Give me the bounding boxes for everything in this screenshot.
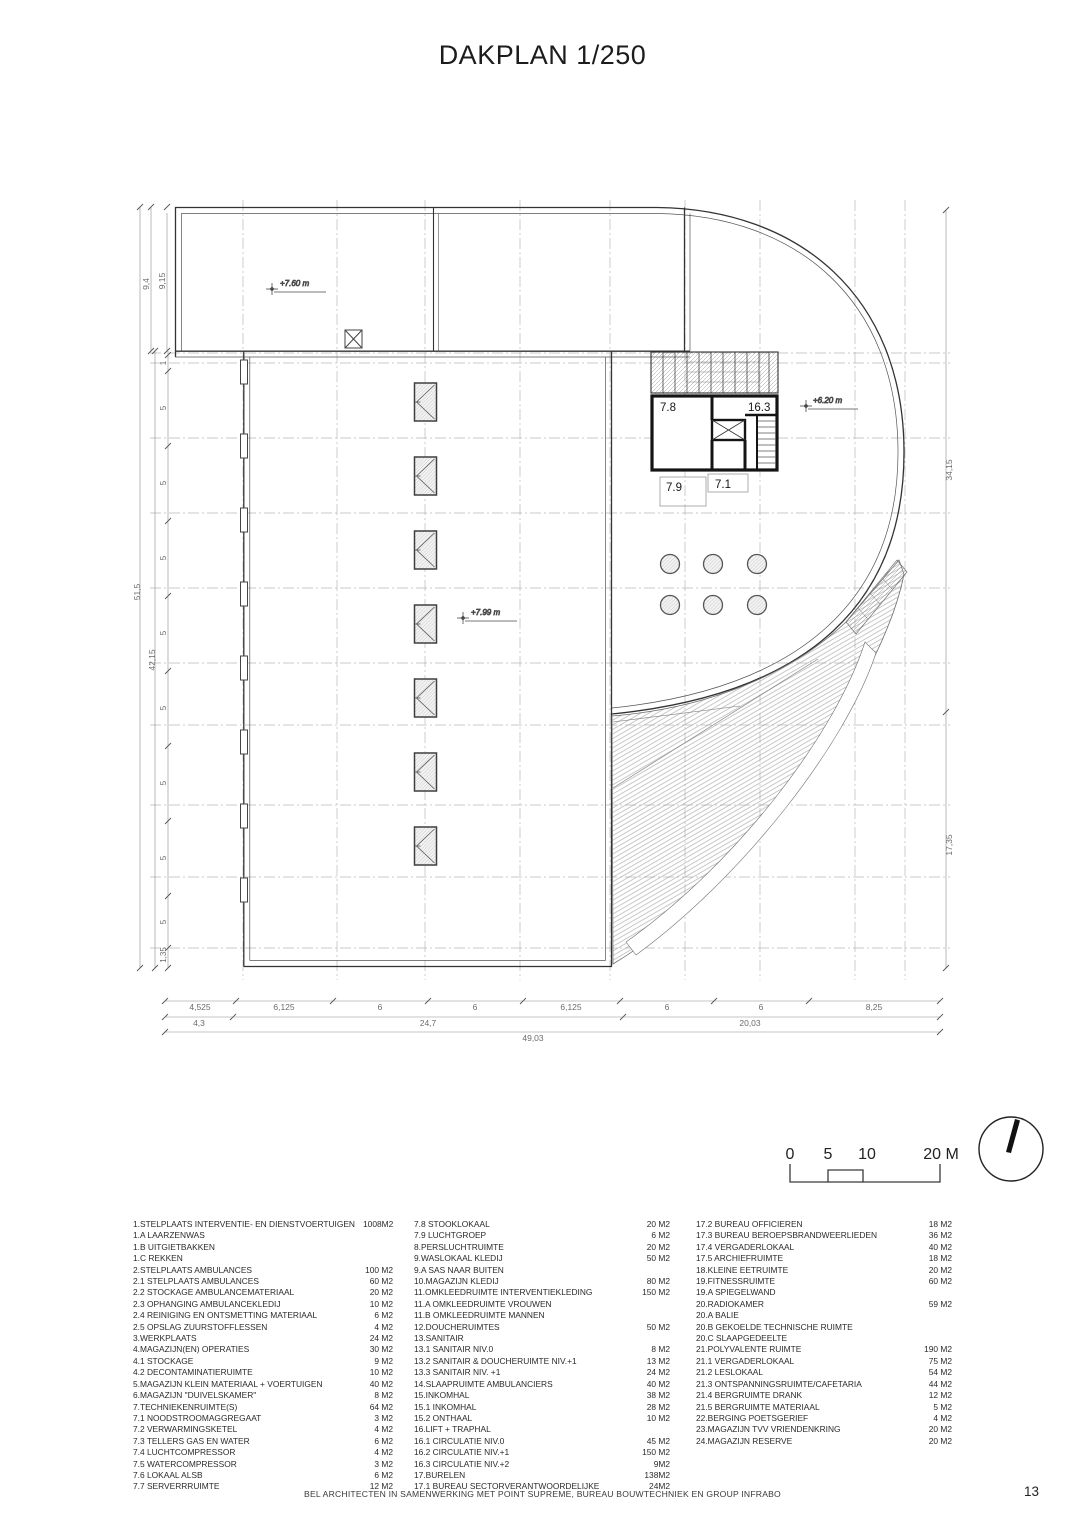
legend-room-label: 13.1 SANITAIR NIV.0 bbox=[414, 1344, 493, 1355]
legend-room-label: 17.2 BUREAU OFFICIEREN bbox=[696, 1219, 803, 1230]
roof-hatch-box bbox=[345, 330, 362, 348]
legend-room-label: 18.KLEINE EETRUIMTE bbox=[696, 1265, 788, 1276]
legend-room-label: 15.1 INKOMHAL bbox=[414, 1402, 476, 1413]
legend-row: 9.WASLOKAAL KLEDIJ50 M2 bbox=[414, 1253, 670, 1264]
dim-bottom-segment: 6 bbox=[665, 1002, 670, 1012]
skylight bbox=[415, 383, 437, 421]
legend-room-label: 20.RADIOKAMER bbox=[696, 1299, 764, 1310]
legend-row: 11.B OMKLEEDRUIMTE MANNEN bbox=[414, 1310, 670, 1321]
legend-area-value: 54 M2 bbox=[921, 1367, 952, 1378]
legend-row: 2.STELPLAATS AMBULANCES100 M2 bbox=[133, 1265, 393, 1276]
dim-left-ticklabels: 1555555551,35 bbox=[159, 360, 168, 963]
dim-bottom-group: 24,7 bbox=[420, 1018, 437, 1028]
legend-row: 2.4 REINIGING EN ONTSMETTING MATERIAAL6 … bbox=[133, 1310, 393, 1321]
legend-room-label: 17.5 ARCHIEFRUIMTE bbox=[696, 1253, 783, 1264]
legend-row: 1.B UITGIETBAKKEN bbox=[133, 1242, 393, 1253]
room-label-7-1: 7.1 bbox=[715, 479, 731, 491]
legend-area-value: 24 M2 bbox=[639, 1367, 670, 1378]
legend-room-label: 7.4 LUCHTCOMPRESSOR bbox=[133, 1447, 235, 1458]
legend-area-value: 20 M2 bbox=[921, 1424, 952, 1435]
dim-row-groups: 4,324,720,03 bbox=[193, 1018, 761, 1028]
legend-area-value bbox=[662, 1265, 670, 1276]
legend-row: 4.2 DECONTAMINATIERUIMTE10 M2 bbox=[133, 1367, 393, 1378]
legend-area-value: 4 M2 bbox=[366, 1424, 393, 1435]
legend-row: 7.8 STOOKLOKAAL20 M2 bbox=[414, 1219, 670, 1230]
legend-area-value: 13 M2 bbox=[639, 1356, 670, 1367]
legend-area-value: 20 M2 bbox=[921, 1436, 952, 1447]
legend-room-label: 21.4 BERGRUIMTE DRANK bbox=[696, 1390, 802, 1401]
legend-area-value bbox=[385, 1242, 393, 1253]
legend-room-label: 19.FITNESSRUIMTE bbox=[696, 1276, 775, 1287]
dim-bottom-segment: 6 bbox=[759, 1002, 764, 1012]
legend-room-label: 1.C REKKEN bbox=[133, 1253, 183, 1264]
legend-row: 16.3 CIRCULATIE NIV.+29M2 bbox=[414, 1459, 670, 1470]
dim-left-tick: 5 bbox=[159, 555, 168, 560]
dim-row-segments: 4,5256,125666,125668,25 bbox=[189, 1002, 882, 1012]
dim-left-top-inner: 9,15 bbox=[157, 272, 167, 289]
legend-room-label: 21.1 VERGADERLOKAAL bbox=[696, 1356, 794, 1367]
roof-vent bbox=[704, 555, 723, 574]
room-label-16-3: 16.3 bbox=[748, 402, 770, 414]
legend-area-value: 44 M2 bbox=[921, 1379, 952, 1390]
legend-room-label: 13.2 SANITAIR & DOUCHERUIMTE NIV.+1 bbox=[414, 1356, 577, 1367]
legend-row: 21.5 BERGRUIMTE MATERIAAL5 M2 bbox=[696, 1402, 952, 1413]
legend-area-value: 38 M2 bbox=[639, 1390, 670, 1401]
legend-area-value: 9 M2 bbox=[366, 1356, 393, 1367]
dim-bottom-segment: 4,525 bbox=[189, 1002, 211, 1012]
legend-row: 7.3 TELLERS GAS EN WATER6 M2 bbox=[133, 1436, 393, 1447]
legend-room-label: 13.3 SANITAIR NIV. +1 bbox=[414, 1367, 500, 1378]
legend-row: 15.1 INKOMHAL28 M2 bbox=[414, 1402, 670, 1413]
legend-row: 2.3 OPHANGING AMBULANCEKLEDIJ10 M2 bbox=[133, 1299, 393, 1310]
legend-row: 11.OMKLEEDRUIMTE INTERVENTIEKLEDING150 M… bbox=[414, 1287, 670, 1298]
legend-room-label: 16.2 CIRCULATIE NIV.+1 bbox=[414, 1447, 509, 1458]
legend-row: 7.1 NOODSTROOMAGGREGAAT3 M2 bbox=[133, 1413, 393, 1424]
legend-area-value: 8 M2 bbox=[366, 1390, 393, 1401]
legend-row: 10.MAGAZIJN KLEDIJ80 M2 bbox=[414, 1276, 670, 1287]
legend-row: 16.LIFT + TRAPHAL bbox=[414, 1424, 670, 1435]
legend-area-value: 5 M2 bbox=[925, 1402, 952, 1413]
roof-plan-drawing: 7.8 16.3 7.9 7.1 +7.60 m +7.99 bbox=[0, 0, 1085, 1210]
legend-row: 9.A SAS NAAR BUITEN bbox=[414, 1265, 670, 1276]
legend-area-value bbox=[385, 1253, 393, 1264]
roof-outline bbox=[175, 208, 904, 967]
legend-room-label: 13.SANITAIR bbox=[414, 1333, 464, 1344]
legend-row: 21.1 VERGADERLOKAAL75 M2 bbox=[696, 1356, 952, 1367]
legend-row: 7.TECHNIEKENRUIMTE(S)64 M2 bbox=[133, 1402, 393, 1413]
skylight bbox=[415, 531, 437, 569]
legend-row: 18.KLEINE EETRUIMTE20 M2 bbox=[696, 1265, 952, 1276]
legend-row: 1.A LAARZENWAS bbox=[133, 1230, 393, 1241]
legend-room-label: 4.1 STOCKAGE bbox=[133, 1356, 193, 1367]
legend-room-label: 2.1 STELPLAATS AMBULANCES bbox=[133, 1276, 259, 1287]
dim-bottom-segment: 8,25 bbox=[866, 1002, 883, 1012]
dim-tick bbox=[164, 204, 170, 210]
dim-left-tick: 5 bbox=[159, 855, 168, 860]
wall-pier bbox=[241, 582, 248, 606]
legend-room-label: 12.DOUCHERUIMTES bbox=[414, 1322, 500, 1333]
legend-area-value: 18 M2 bbox=[921, 1253, 952, 1264]
legend-row: 7.2 VERWARMINGSKETEL4 M2 bbox=[133, 1424, 393, 1435]
legend-area-value: 150 M2 bbox=[634, 1287, 670, 1298]
legend-room-label: 7.3 TELLERS GAS EN WATER bbox=[133, 1436, 250, 1447]
legend-area-value: 80 M2 bbox=[639, 1276, 670, 1287]
dim-left-tick: 1 bbox=[159, 360, 168, 365]
dim-left-tick: 5 bbox=[159, 630, 168, 635]
legend-area-value: 190 M2 bbox=[916, 1344, 952, 1355]
legend-area-value: 6 M2 bbox=[366, 1310, 393, 1321]
legend-room-label: 15.2 ONTHAAL bbox=[414, 1413, 472, 1424]
legend-room-label: 16.1 CIRCULATIE NIV.0 bbox=[414, 1436, 504, 1447]
legend-area-value: 30 M2 bbox=[362, 1344, 393, 1355]
roof-vent bbox=[661, 555, 680, 574]
legend-room-label: 9.A SAS NAAR BUITEN bbox=[414, 1265, 504, 1276]
legend-row: 21.3 ONTSPANNINGSRUIMTE/CAFETARIA44 M2 bbox=[696, 1379, 952, 1390]
legend-area-value bbox=[944, 1287, 952, 1298]
legend-area-value: 20 M2 bbox=[639, 1242, 670, 1253]
legend-area-value: 20 M2 bbox=[362, 1287, 393, 1298]
legend-room-label: 9.WASLOKAAL KLEDIJ bbox=[414, 1253, 503, 1264]
legend-area-value: 18 M2 bbox=[921, 1219, 952, 1230]
page-number: 13 bbox=[1024, 1484, 1039, 1499]
legend-row: 6.MAGAZIJN "DUIVELSKAMER"8 M2 bbox=[133, 1390, 393, 1401]
legend-room-label: 21.5 BERGRUIMTE MATERIAAL bbox=[696, 1402, 820, 1413]
legend-row: 20.RADIOKAMER59 M2 bbox=[696, 1299, 952, 1310]
legend-area-value: 12 M2 bbox=[921, 1390, 952, 1401]
legend-room-label: 21.3 ONTSPANNINGSRUIMTE/CAFETARIA bbox=[696, 1379, 862, 1390]
legend-row: 17.BURELEN138M2 bbox=[414, 1470, 670, 1481]
legend-room-label: 6.MAGAZIJN "DUIVELSKAMER" bbox=[133, 1390, 256, 1401]
legend-room-label: 3.WERKPLAATS bbox=[133, 1333, 197, 1344]
legend-room-label: 7.6 LOKAAL ALSB bbox=[133, 1470, 203, 1481]
legend-row: 1.C REKKEN bbox=[133, 1253, 393, 1264]
legend-row: 17.4 VERGADERLOKAAL40 M2 bbox=[696, 1242, 952, 1253]
legend-row: 17.2 BUREAU OFFICIEREN18 M2 bbox=[696, 1219, 952, 1230]
legend-room-label: 8.PERSLUCHTRUIMTE bbox=[414, 1242, 504, 1253]
legend-row: 7.9 LUCHTGROEP6 M2 bbox=[414, 1230, 670, 1241]
roof-vent bbox=[748, 555, 767, 574]
legend-row: 13.3 SANITAIR NIV. +124 M2 bbox=[414, 1367, 670, 1378]
legend-room-label: 15.INKOMHAL bbox=[414, 1390, 469, 1401]
legend-room-label: 20.C SLAAPGEDEELTE bbox=[696, 1333, 787, 1344]
legend-row: 19.A SPIEGELWAND bbox=[696, 1287, 952, 1298]
legend-area-value: 75 M2 bbox=[921, 1356, 952, 1367]
level-label-penthouse: +6.20 m bbox=[813, 396, 842, 405]
dim-bottom-group: 4,3 bbox=[193, 1018, 205, 1028]
legend-room-label: 22.BERGING POETSGERIEF bbox=[696, 1413, 808, 1424]
scalebar-label: 10 bbox=[858, 1146, 876, 1163]
legend-row: 16.2 CIRCULATIE NIV.+1150 M2 bbox=[414, 1447, 670, 1458]
legend-row: 21.2 LESLOKAAL54 M2 bbox=[696, 1367, 952, 1378]
roof-vents bbox=[661, 555, 767, 615]
legend-area-value: 60 M2 bbox=[921, 1276, 952, 1287]
legend-room-label: 16.3 CIRCULATIE NIV.+2 bbox=[414, 1459, 509, 1470]
penthouse: 7.8 16.3 7.9 7.1 bbox=[651, 352, 778, 506]
scale-bar: 051020 M bbox=[786, 1146, 959, 1182]
legend-row: 2.1 STELPLAATS AMBULANCES60 M2 bbox=[133, 1276, 393, 1287]
legend-room-label: 7.2 VERWARMINGSKETEL bbox=[133, 1424, 237, 1435]
legend-area-value: 59 M2 bbox=[921, 1299, 952, 1310]
dim-left-tick: 1,35 bbox=[159, 947, 168, 963]
legend-room-label: 20.A BALIE bbox=[696, 1310, 739, 1321]
legend-area-value bbox=[662, 1333, 670, 1344]
legend-row: 20.A BALIE bbox=[696, 1310, 952, 1321]
legend-area-value: 4 M2 bbox=[366, 1322, 393, 1333]
legend-row: 13.2 SANITAIR & DOUCHERUIMTE NIV.+113 M2 bbox=[414, 1356, 670, 1367]
legend-area-value: 50 M2 bbox=[639, 1253, 670, 1264]
legend-col-3: 17.2 BUREAU OFFICIEREN18 M217.3 BUREAU B… bbox=[696, 1219, 952, 1447]
legend-row: 7.6 LOKAAL ALSB6 M2 bbox=[133, 1470, 393, 1481]
legend-room-label: 20.B GEKOELDE TECHNISCHE RUIMTE bbox=[696, 1322, 853, 1333]
legend-row: 4.MAGAZIJN(EN) OPERATIES30 M2 bbox=[133, 1344, 393, 1355]
dim-bottom-group: 20,03 bbox=[739, 1018, 761, 1028]
legend-area-value: 50 M2 bbox=[639, 1322, 670, 1333]
legend-area-value: 6 M2 bbox=[643, 1230, 670, 1241]
wall-pier bbox=[241, 878, 248, 902]
sheet: DAKPLAN 1/250 bbox=[0, 0, 1085, 1536]
legend-area-value: 10 M2 bbox=[362, 1367, 393, 1378]
dim-left-tick: 5 bbox=[159, 780, 168, 785]
legend-room-label: 17.3 BUREAU BEROEPSBRANDWEERLIEDEN bbox=[696, 1230, 877, 1241]
legend-room-label: 16.LIFT + TRAPHAL bbox=[414, 1424, 491, 1435]
legend-room-label: 4.2 DECONTAMINATIERUIMTE bbox=[133, 1367, 253, 1378]
credit-line: BEL ARCHITECTEN IN SAMENWERKING MET POIN… bbox=[0, 1489, 1085, 1499]
legend-row: 20.C SLAAPGEDEELTE bbox=[696, 1333, 952, 1344]
dimension-ticks bbox=[137, 204, 949, 1035]
legend-row: 2.5 OPSLAG ZUURSTOFFLESSEN4 M2 bbox=[133, 1322, 393, 1333]
legend-room-label: 10.MAGAZIJN KLEDIJ bbox=[414, 1276, 499, 1287]
legend-area-value: 1008M2 bbox=[355, 1219, 393, 1230]
dim-left-top-outer: 9,4 bbox=[141, 278, 151, 290]
skylight bbox=[415, 457, 437, 495]
level-label-upper: +7.60 m bbox=[280, 279, 309, 288]
legend-area-value: 4 M2 bbox=[366, 1447, 393, 1458]
legend-row: 8.PERSLUCHTRUIMTE20 M2 bbox=[414, 1242, 670, 1253]
legend-area-value: 20 M2 bbox=[639, 1219, 670, 1230]
legend-row: 14.SLAAPRUIMTE AMBULANCIERS40 M2 bbox=[414, 1379, 670, 1390]
legend-room-label: 19.A SPIEGELWAND bbox=[696, 1287, 776, 1298]
legend-row: 2.2 STOCKAGE AMBULANCEMATERIAAL20 M2 bbox=[133, 1287, 393, 1298]
room-label-7-9: 7.9 bbox=[666, 482, 682, 494]
legend-room-label: 7.1 NOODSTROOMAGGREGAAT bbox=[133, 1413, 261, 1424]
skylight bbox=[415, 753, 437, 791]
legend-area-value: 24 M2 bbox=[362, 1333, 393, 1344]
scalebar-label: 20 M bbox=[923, 1146, 959, 1163]
skylight-strip bbox=[415, 383, 437, 865]
legend-row: 15.2 ONTHAAL10 M2 bbox=[414, 1413, 670, 1424]
ramp-wedge bbox=[612, 560, 907, 964]
legend-room-label: 2.STELPLAATS AMBULANCES bbox=[133, 1265, 252, 1276]
legend-area-value: 9M2 bbox=[646, 1459, 670, 1470]
legend-room-label: 7.8 STOOKLOKAAL bbox=[414, 1219, 490, 1230]
north-arrow-icon bbox=[979, 1117, 1043, 1181]
legend-row: 1.STELPLAATS INTERVENTIE- EN DIENSTVOERT… bbox=[133, 1219, 393, 1230]
dim-bottom-segment: 6 bbox=[473, 1002, 478, 1012]
legend-row: 23.MAGAZIJN TVV VRIENDENKRING20 M2 bbox=[696, 1424, 952, 1435]
legend-room-label: 7.TECHNIEKENRUIMTE(S) bbox=[133, 1402, 237, 1413]
legend-room-label: 11.OMKLEEDRUIMTE INTERVENTIEKLEDING bbox=[414, 1287, 592, 1298]
legend-area-value: 10 M2 bbox=[362, 1299, 393, 1310]
legend-row: 20.B GEKOELDE TECHNISCHE RUIMTE bbox=[696, 1322, 952, 1333]
legend-area-value bbox=[944, 1333, 952, 1344]
legend-room-label: 17.4 VERGADERLOKAAL bbox=[696, 1242, 794, 1253]
legend-area-value: 40 M2 bbox=[921, 1242, 952, 1253]
roof-vent bbox=[704, 596, 723, 615]
legend-row: 4.1 STOCKAGE9 M2 bbox=[133, 1356, 393, 1367]
dim-right-top: 34,15 bbox=[944, 459, 954, 481]
legend-area-value: 4 M2 bbox=[925, 1413, 952, 1424]
dim-total-width: 49,03 bbox=[522, 1033, 544, 1043]
legend-row: 19.FITNESSRUIMTE60 M2 bbox=[696, 1276, 952, 1287]
legend-room-label: 11.B OMKLEEDRUIMTE MANNEN bbox=[414, 1310, 545, 1321]
legend-room-label: 1.A LAARZENWAS bbox=[133, 1230, 205, 1241]
legend-room-label: 1.STELPLAATS INTERVENTIE- EN DIENSTVOERT… bbox=[133, 1219, 355, 1230]
legend-row: 7.5 WATERCOMPRESSOR3 M2 bbox=[133, 1459, 393, 1470]
legend-row: 12.DOUCHERUIMTES50 M2 bbox=[414, 1322, 670, 1333]
wall-pier bbox=[241, 730, 248, 754]
legend-room-label: 14.SLAAPRUIMTE AMBULANCIERS bbox=[414, 1379, 553, 1390]
wall-pier bbox=[241, 360, 248, 384]
legend-area-value: 6 M2 bbox=[366, 1470, 393, 1481]
legend-area-value: 3 M2 bbox=[366, 1413, 393, 1424]
legend-area-value bbox=[385, 1230, 393, 1241]
wall-pier bbox=[241, 656, 248, 680]
legend-area-value: 8 M2 bbox=[643, 1344, 670, 1355]
level-label-mid: +7.99 m bbox=[471, 608, 500, 617]
wall-pier bbox=[241, 508, 248, 532]
legend-room-label: 17.BURELEN bbox=[414, 1470, 465, 1481]
legend-area-value: 138M2 bbox=[636, 1470, 670, 1481]
scalebar-label: 5 bbox=[824, 1146, 833, 1163]
scalebar-label: 0 bbox=[786, 1146, 795, 1163]
dim-left-tick: 5 bbox=[159, 705, 168, 710]
dim-left-outer: 51,5 bbox=[132, 583, 142, 600]
legend-area-value: 150 M2 bbox=[634, 1447, 670, 1458]
roof-vent bbox=[748, 596, 767, 615]
legend-row: 22.BERGING POETSGERIEF4 M2 bbox=[696, 1413, 952, 1424]
legend-room-label: 23.MAGAZIJN TVV VRIENDENKRING bbox=[696, 1424, 841, 1435]
dim-bottom-segment: 6,125 bbox=[560, 1002, 582, 1012]
legend-area-value: 64 M2 bbox=[362, 1402, 393, 1413]
legend-room-label: 7.5 WATERCOMPRESSOR bbox=[133, 1459, 237, 1470]
legend-area-value: 36 M2 bbox=[921, 1230, 952, 1241]
dim-bottom-segment: 6,125 bbox=[273, 1002, 295, 1012]
skylight bbox=[415, 827, 437, 865]
legend-row: 17.3 BUREAU BEROEPSBRANDWEERLIEDEN36 M2 bbox=[696, 1230, 952, 1241]
skylight bbox=[415, 605, 437, 643]
legend-room-label: 7.9 LUCHTGROEP bbox=[414, 1230, 486, 1241]
legend-room-label: 1.B UITGIETBAKKEN bbox=[133, 1242, 215, 1253]
legend-area-value bbox=[662, 1310, 670, 1321]
legend-row: 5.MAGAZIJN KLEIN MATERIAAL + VOERTUIGEN4… bbox=[133, 1379, 393, 1390]
legend-area-value: 3 M2 bbox=[366, 1459, 393, 1470]
legend-row: 16.1 CIRCULATIE NIV.045 M2 bbox=[414, 1436, 670, 1447]
legend-row: 15.INKOMHAL38 M2 bbox=[414, 1390, 670, 1401]
legend-col-1: 1.STELPLAATS INTERVENTIE- EN DIENSTVOERT… bbox=[133, 1219, 393, 1493]
legend-row: 13.1 SANITAIR NIV.08 M2 bbox=[414, 1344, 670, 1355]
legend-area-value: 40 M2 bbox=[362, 1379, 393, 1390]
dim-left-tick: 5 bbox=[159, 405, 168, 410]
roof-vent bbox=[661, 596, 680, 615]
legend-row: 3.WERKPLAATS24 M2 bbox=[133, 1333, 393, 1344]
legend-row: 24.MAGAZIJN RESERVE20 M2 bbox=[696, 1436, 952, 1447]
legend-room-label: 24.MAGAZIJN RESERVE bbox=[696, 1436, 792, 1447]
legend-room-label: 5.MAGAZIJN KLEIN MATERIAAL + VOERTUIGEN bbox=[133, 1379, 323, 1390]
legend-room-label: 2.5 OPSLAG ZUURSTOFFLESSEN bbox=[133, 1322, 267, 1333]
legend-row: 21.4 BERGRUIMTE DRANK12 M2 bbox=[696, 1390, 952, 1401]
wall-pier bbox=[241, 804, 248, 828]
dim-left-tick: 5 bbox=[159, 480, 168, 485]
legend-area-value bbox=[944, 1310, 952, 1321]
legend-area-value: 28 M2 bbox=[639, 1402, 670, 1413]
legend-room-label: 4.MAGAZIJN(EN) OPERATIES bbox=[133, 1344, 249, 1355]
legend-room-label: 11.A OMKLEEDRUIMTE VROUWEN bbox=[414, 1299, 552, 1310]
legend-row: 21.POLYVALENTE RUIMTE190 M2 bbox=[696, 1344, 952, 1355]
room-label-7-8: 7.8 bbox=[660, 402, 676, 414]
legend-area-value bbox=[944, 1322, 952, 1333]
legend-area-value: 6 M2 bbox=[366, 1436, 393, 1447]
dim-bottom-segment: 6 bbox=[378, 1002, 383, 1012]
legend-col-2: 7.8 STOOKLOKAAL20 M27.9 LUCHTGROEP6 M28.… bbox=[414, 1219, 670, 1493]
legend-area-value bbox=[662, 1424, 670, 1435]
wall-pier bbox=[241, 434, 248, 458]
legend-room-label: 21.POLYVALENTE RUIMTE bbox=[696, 1344, 801, 1355]
legend-area-value: 20 M2 bbox=[921, 1265, 952, 1276]
legend-room-label: 21.2 LESLOKAAL bbox=[696, 1367, 763, 1378]
legend-row: 7.4 LUCHTCOMPRESSOR4 M2 bbox=[133, 1447, 393, 1458]
dimension-lines bbox=[140, 207, 946, 1032]
structural-grid bbox=[150, 200, 950, 980]
legend-room-label: 2.3 OPHANGING AMBULANCEKLEDIJ bbox=[133, 1299, 281, 1310]
skylight bbox=[415, 679, 437, 717]
legend-area-value: 100 M2 bbox=[357, 1265, 393, 1276]
legend-area-value bbox=[662, 1299, 670, 1310]
legend-area-value: 10 M2 bbox=[639, 1413, 670, 1424]
legend-area-value: 45 M2 bbox=[639, 1436, 670, 1447]
dim-right-bottom: 17,35 bbox=[944, 834, 954, 856]
legend-area-value: 40 M2 bbox=[639, 1379, 670, 1390]
legend-area-value: 60 M2 bbox=[362, 1276, 393, 1287]
dim-left-tick: 5 bbox=[159, 919, 168, 924]
legend-row: 13.SANITAIR bbox=[414, 1333, 670, 1344]
legend-room-label: 2.4 REINIGING EN ONTSMETTING MATERIAAL bbox=[133, 1310, 317, 1321]
legend-row: 11.A OMKLEEDRUIMTE VROUWEN bbox=[414, 1299, 670, 1310]
legend-room-label: 2.2 STOCKAGE AMBULANCEMATERIAAL bbox=[133, 1287, 294, 1298]
legend-row: 17.5 ARCHIEFRUIMTE18 M2 bbox=[696, 1253, 952, 1264]
dim-left-mid: 42,15 bbox=[147, 649, 157, 671]
